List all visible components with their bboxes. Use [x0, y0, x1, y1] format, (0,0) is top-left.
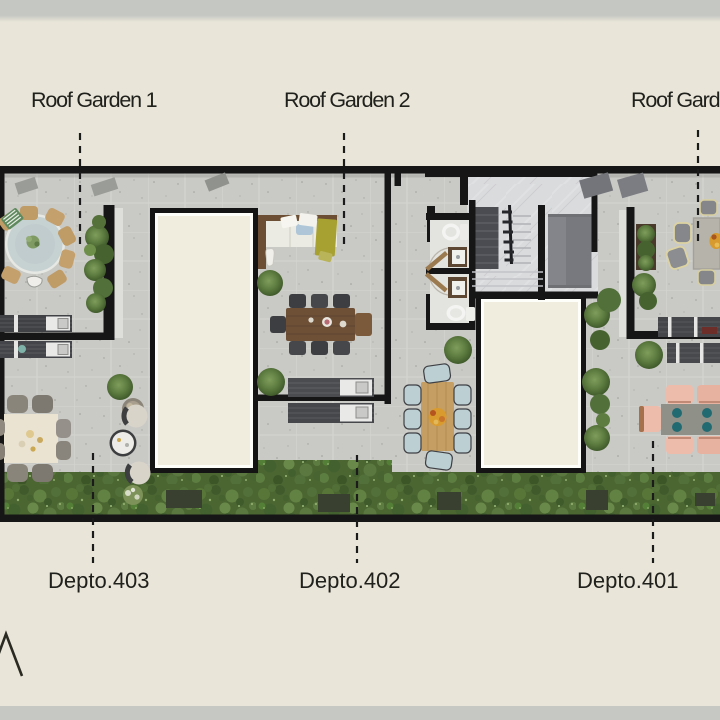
svg-text:Depto.403: Depto.403	[48, 568, 150, 593]
svg-text:Roof Garden 2: Roof Garden 2	[284, 88, 410, 112]
svg-text:Depto.402: Depto.402	[299, 568, 401, 593]
svg-text:Roof Garden 3: Roof Garden 3	[631, 88, 720, 112]
svg-text:Roof Garden 1: Roof Garden 1	[31, 88, 157, 112]
svg-text:Depto.401: Depto.401	[577, 568, 679, 593]
